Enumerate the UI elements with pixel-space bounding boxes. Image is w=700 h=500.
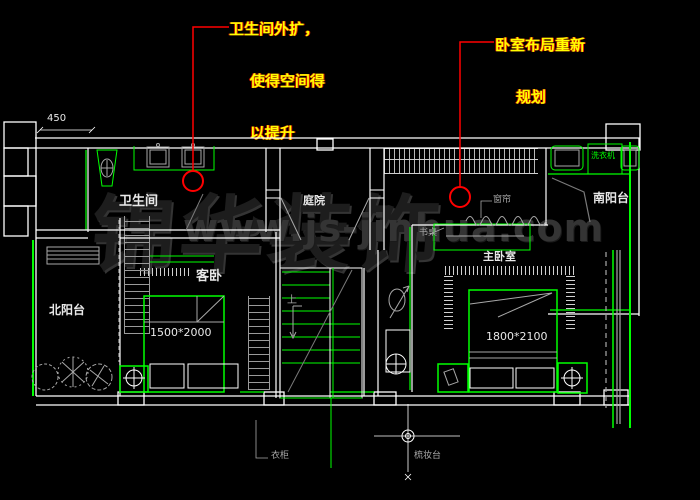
label-wardrobe: 衣柜 (271, 452, 289, 462)
room-label-bathroom: 卫生间 (119, 195, 158, 209)
room-label-south-balcony: 南阳台 (593, 192, 629, 205)
plan-linework (0, 0, 700, 500)
dressing-table-marker (374, 404, 460, 480)
label-desk: 书桌 (419, 229, 437, 239)
red-leader-lines (183, 27, 494, 207)
desk-and-chair (386, 286, 410, 374)
room-label-courtyard: 庭院 (303, 195, 325, 207)
label-curtain: 窗帘 (493, 196, 511, 206)
north-balcony-items (32, 247, 148, 392)
leader-bubble-bathroom (183, 171, 203, 191)
room-label-master-bedroom: 主卧室 (483, 251, 516, 263)
room-label-guest-bedroom: 客卧 (196, 270, 222, 284)
leader-line-bedroom-note (460, 42, 494, 187)
ceiling-lamp-symbol (561, 367, 583, 389)
toilet-icon (97, 150, 117, 186)
dim-offset-450: 450 (47, 113, 66, 124)
curtain-leader (481, 201, 492, 218)
annotation-symbols (256, 201, 492, 480)
bathroom-door-leaf (186, 194, 203, 230)
floorplan-canvas[interactable]: 锦华装饰 www.js-jinhua.com (0, 0, 700, 500)
dim-guest-bed: 1500*2000 (150, 327, 212, 339)
dim-master-bed: 1800*2100 (486, 331, 548, 343)
sink-icon (147, 144, 204, 168)
courtyard-doors (266, 190, 384, 240)
nightstand-left (438, 364, 468, 392)
leader-line-bathroom-note (193, 27, 229, 171)
label-dressing-table: 梳妆台 (414, 452, 441, 462)
room-label-north-balcony: 北阳台 (49, 304, 85, 317)
dimension-450-line (37, 127, 95, 133)
vanity-counter (134, 146, 214, 170)
label-washing-machine: 洗衣机 (591, 152, 615, 161)
master-wardrobe (434, 224, 530, 250)
label-stairs-up: 上 (287, 295, 297, 306)
master-bedroom-furniture (386, 217, 587, 394)
bathroom-fixtures (97, 144, 214, 231)
wardrobe-leader (256, 420, 268, 458)
guest-bedroom-furniture (144, 256, 238, 392)
leader-bubble-bedroom (450, 187, 470, 207)
